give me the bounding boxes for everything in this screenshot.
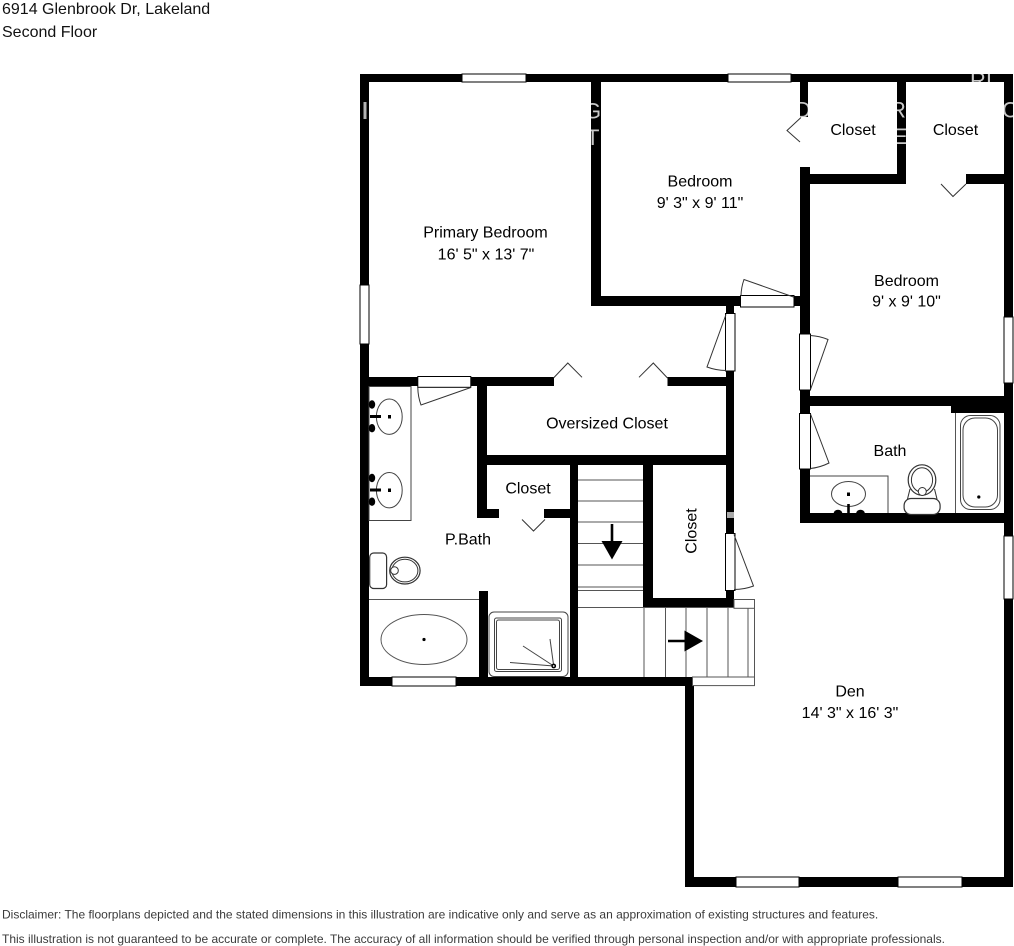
svg-text:Closet: Closet — [684, 508, 701, 554]
svg-text:Closet: Closet — [830, 122, 876, 139]
svg-text:Bath: Bath — [874, 443, 907, 460]
svg-text:Oversized Closet: Oversized Closet — [546, 416, 668, 433]
svg-text:Second Floor: Second Floor — [2, 24, 98, 41]
svg-text:Bedroom: Bedroom — [668, 174, 733, 191]
svg-text:9' 3" x 9' 11": 9' 3" x 9' 11" — [657, 195, 744, 212]
svg-text:Closet: Closet — [505, 481, 551, 498]
svg-text:Bedroom: Bedroom — [874, 273, 939, 290]
svg-text:P.Bath: P.Bath — [445, 532, 491, 549]
svg-text:This illustration is not guara: This illustration is not guaranteed to b… — [2, 932, 945, 946]
svg-text:Closet: Closet — [933, 122, 979, 139]
svg-text:9' x 9' 10": 9' x 9' 10" — [872, 294, 941, 311]
svg-text:Primary Bedroom: Primary Bedroom — [423, 225, 547, 242]
svg-text:6914 Glenbrook Dr, Lakeland: 6914 Glenbrook Dr, Lakeland — [2, 1, 210, 18]
svg-text:14' 3" x 16' 3": 14' 3" x 16' 3" — [802, 705, 899, 722]
svg-text:Den: Den — [835, 684, 864, 701]
svg-text:Disclaimer: The floorplans dep: Disclaimer: The floorplans depicted and … — [2, 908, 878, 922]
svg-text:16' 5" x 13' 7": 16' 5" x 13' 7" — [438, 247, 535, 264]
